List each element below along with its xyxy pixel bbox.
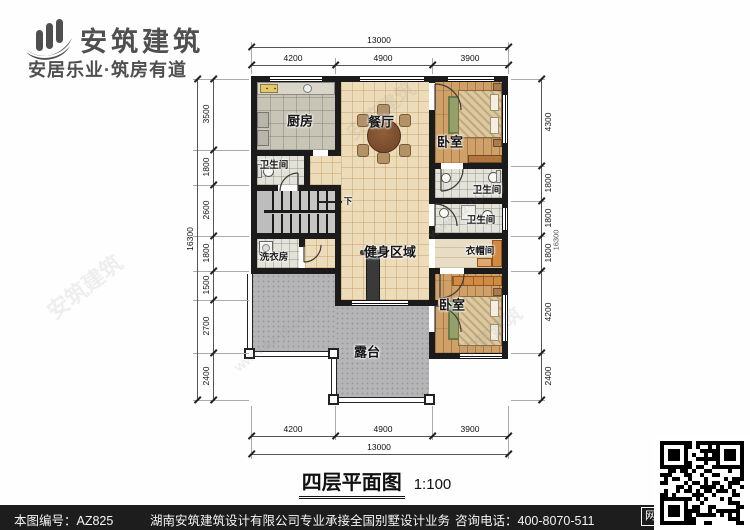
railing-post (424, 394, 435, 405)
dim-label: 4900 (374, 424, 393, 434)
company-name: 湖南安筑建筑设计有限公司 (150, 510, 300, 529)
dim-label: 2600 (201, 201, 211, 220)
phone-text: 咨询电话：400-8070-511 (455, 510, 594, 529)
room-label-bedroom-bottom: 卧室 (439, 295, 465, 314)
dim-label: 2700 (201, 317, 211, 336)
service-text: 专业承接全国别墅设计业务 (300, 510, 450, 529)
qr-code (660, 441, 744, 525)
room-label-gym: 健身区域 (364, 242, 416, 261)
room-label-kitchen: 厨房 (287, 111, 313, 130)
extension-line (193, 353, 249, 354)
dim-label: 4300 (543, 113, 553, 132)
room-label-bath-left: 卫生间 (260, 157, 289, 171)
dim-label: 4900 (374, 53, 393, 63)
dim-label: 3500 (201, 105, 211, 124)
dim-label: 3900 (461, 424, 480, 434)
stairs-down-label: 下 (344, 195, 353, 207)
dim-label: 16300 (185, 227, 195, 251)
dimension-line (251, 47, 508, 48)
railing-post (328, 348, 339, 359)
room-label-bath-right-1: 卫生间 (473, 182, 502, 196)
dim-label: 4200 (284, 53, 303, 63)
room-label-bedroom-top: 卧室 (437, 132, 463, 151)
dim-label: 1800 (201, 158, 211, 177)
dimension-line (197, 79, 198, 400)
room-label-laundry: 洗衣房 (260, 249, 289, 263)
room-label-cloakroom: 衣帽间 (466, 243, 495, 257)
floor-plan-sheet: 安筑建筑 安居乐业·筑房有道 (0, 0, 750, 530)
extension-line (193, 236, 249, 237)
dim-label: 3900 (461, 53, 480, 63)
dimension-line (251, 454, 508, 455)
dim-label: 4200 (543, 303, 553, 322)
dim-label: 1500 (201, 276, 211, 295)
dim-label: 2400 (201, 367, 211, 386)
extension-line (193, 400, 249, 401)
room-label-terrace: 露台 (354, 342, 380, 361)
sheet-number: 本图编号：AZ825 (14, 510, 113, 529)
room-label-dining: 餐厅 (368, 112, 394, 131)
terrace-railing (247, 274, 253, 354)
room-label-bath-right-2: 卫生间 (467, 212, 496, 226)
railing-post (328, 394, 339, 405)
dimension-line (251, 436, 508, 437)
dim-label: 1800 (543, 209, 553, 228)
terrace-railing (249, 351, 335, 357)
drawing-scale: 1:100 (414, 476, 452, 493)
dim-label: 2400 (543, 367, 553, 386)
dim-label: 13000 (367, 35, 391, 45)
dim-label: 1800 (543, 174, 553, 193)
dim-label: 13000 (367, 442, 391, 452)
dim-label: 16300 (552, 230, 561, 251)
extension-line (193, 79, 249, 80)
extension-line (193, 271, 249, 272)
drawing-title-row: 四层平面图1:100 (0, 466, 750, 495)
drawing-title: 四层平面图 (299, 472, 405, 499)
extension-line (193, 150, 249, 151)
dimension-line (251, 65, 508, 66)
dim-label: 1800 (201, 244, 211, 263)
extension-line (193, 300, 249, 301)
footer-bar: 本图编号：AZ825 湖南安筑建筑设计有限公司 专业承接全国别墅设计业务 咨询电… (0, 505, 750, 530)
extension-line (193, 185, 249, 186)
terrace-railing (335, 397, 431, 403)
dim-label: 4200 (284, 424, 303, 434)
